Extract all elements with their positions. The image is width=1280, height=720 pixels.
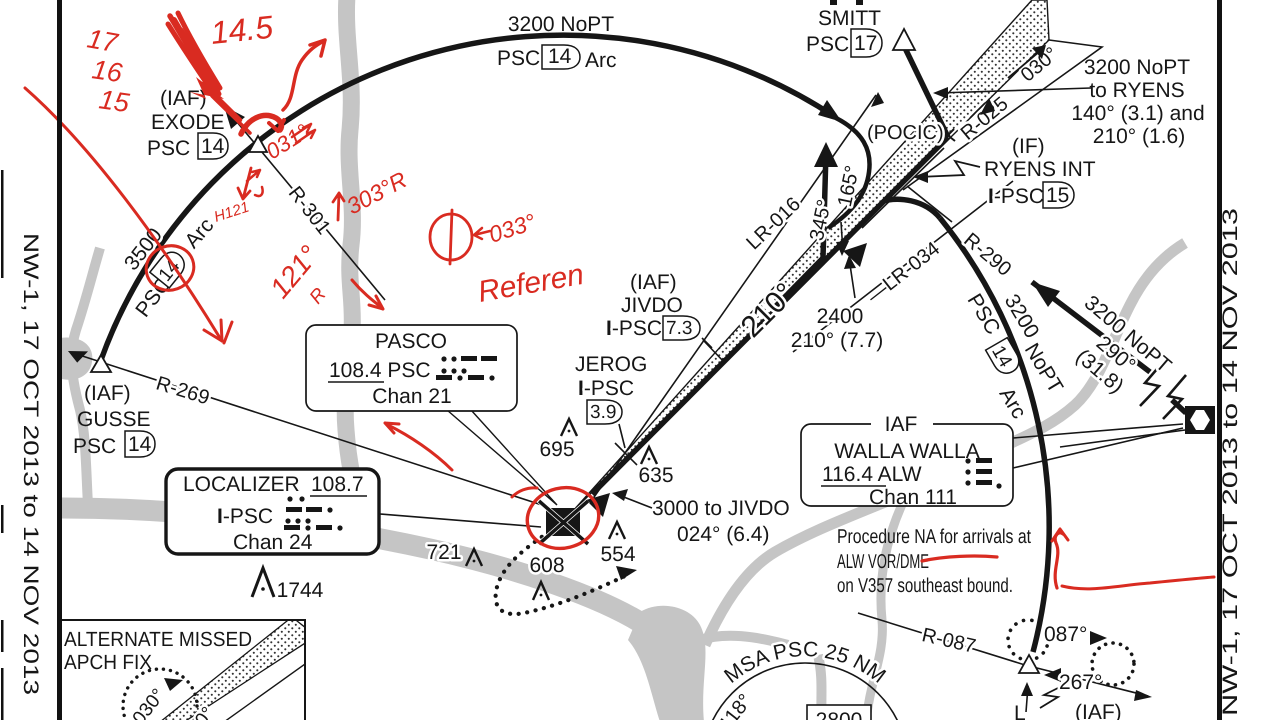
svg-text:EXODE: EXODE xyxy=(151,111,225,134)
svg-text:PSC: PSC xyxy=(497,47,540,70)
svg-text:7.3: 7.3 xyxy=(666,318,692,339)
svg-text:2400: 2400 xyxy=(817,305,864,328)
svg-text:635: 635 xyxy=(638,464,673,487)
svg-text:NW-1, 17 OCT 2013 to 14 NOV 20: NW-1, 17 OCT 2013 to 14 NOV 2013 xyxy=(19,233,42,695)
svg-text:RYENS INT: RYENS INT xyxy=(984,158,1096,181)
svg-text:024° (6.4): 024° (6.4) xyxy=(677,523,769,546)
svg-text:(IAF): (IAF) xyxy=(160,87,207,110)
svg-text:SMITT: SMITT xyxy=(818,7,881,30)
svg-text:108.4 PSC: 108.4 PSC xyxy=(329,359,431,382)
svg-text:14: 14 xyxy=(201,135,225,158)
svg-text:17: 17 xyxy=(85,23,121,58)
svg-text:14: 14 xyxy=(128,433,152,456)
svg-text:(IAF): (IAF) xyxy=(84,382,131,405)
svg-text:WALLA WALLA: WALLA WALLA xyxy=(834,440,980,463)
svg-text:267°: 267° xyxy=(1059,671,1102,694)
svg-text:087°: 087° xyxy=(1044,623,1087,646)
svg-text:PSC: PSC xyxy=(147,137,190,160)
svg-text:116.4 ALW: 116.4 ALW xyxy=(822,463,922,486)
svg-text:108.7: 108.7 xyxy=(311,473,364,496)
svg-text:LOCALIZER: LOCALIZER xyxy=(183,473,300,496)
svg-text:JEROG: JEROG xyxy=(575,353,647,376)
svg-text:on V357 southeast bound.: on V357 southeast bound. xyxy=(837,575,1013,597)
svg-text:15: 15 xyxy=(97,84,132,118)
svg-text:I-PSC: I-PSC xyxy=(606,317,662,340)
svg-text:(IAF): (IAF) xyxy=(630,271,677,294)
svg-text:17: 17 xyxy=(854,32,877,55)
svg-text:554: 554 xyxy=(600,543,635,566)
svg-text:JIVDO: JIVDO xyxy=(621,294,683,317)
svg-text:16: 16 xyxy=(90,54,125,88)
svg-text:(POCIC): (POCIC) xyxy=(867,122,944,144)
svg-text:14: 14 xyxy=(548,45,572,68)
svg-text:Procedure NA for arrivals at: Procedure NA for arrivals at xyxy=(837,526,1031,548)
svg-text:140° (3.1) and: 140° (3.1) and xyxy=(1071,102,1204,125)
svg-text:210° (1.6): 210° (1.6) xyxy=(1093,125,1185,148)
svg-text:2800: 2800 xyxy=(816,709,863,720)
svg-text:to RYENS: to RYENS xyxy=(1089,79,1184,102)
svg-text:I-PSC: I-PSC xyxy=(578,377,634,400)
svg-text:210° (7.7): 210° (7.7) xyxy=(791,329,883,352)
svg-text:IAF: IAF xyxy=(885,413,918,436)
svg-text:721: 721 xyxy=(426,541,461,564)
svg-text:PASCO: PASCO xyxy=(375,330,447,353)
svg-text:L: L xyxy=(1014,702,1026,720)
svg-text:Chan 111: Chan 111 xyxy=(869,486,957,509)
svg-text:608: 608 xyxy=(529,554,564,577)
svg-text:3.9: 3.9 xyxy=(590,402,616,423)
svg-text:PSC: PSC xyxy=(73,435,116,458)
svg-text:Chan 24: Chan 24 xyxy=(233,531,313,554)
svg-text:(IAF): (IAF) xyxy=(1075,701,1122,720)
svg-text:Chan 21: Chan 21 xyxy=(372,385,451,408)
svg-text:Arc: Arc xyxy=(585,49,617,72)
svg-text:APCH FIX: APCH FIX xyxy=(64,651,152,674)
svg-text:I-PSC: I-PSC xyxy=(988,185,1044,208)
svg-text:I-PSC: I-PSC xyxy=(217,505,273,528)
svg-text:695: 695 xyxy=(539,438,574,461)
svg-text:PSC: PSC xyxy=(806,33,849,56)
svg-text:NW-1, 17 OCT 2013 to 14 NOV 20: NW-1, 17 OCT 2013 to 14 NOV 2013 xyxy=(1219,208,1242,716)
svg-text:(IF): (IF) xyxy=(1012,135,1045,158)
svg-text:3200 NoPT: 3200 NoPT xyxy=(1084,56,1190,79)
svg-text:1744: 1744 xyxy=(277,579,324,602)
svg-text:GUSSE: GUSSE xyxy=(77,408,151,431)
svg-text:ALTERNATE MISSED: ALTERNATE MISSED xyxy=(64,628,252,651)
svg-text:14.5: 14.5 xyxy=(209,9,275,51)
svg-text:3200 NoPT: 3200 NoPT xyxy=(508,13,614,36)
svg-text:ALW VOR/DME: ALW VOR/DME xyxy=(837,551,929,573)
svg-text:15: 15 xyxy=(1046,184,1069,207)
svg-text:3000 to JIVDO: 3000 to JIVDO xyxy=(652,497,790,520)
